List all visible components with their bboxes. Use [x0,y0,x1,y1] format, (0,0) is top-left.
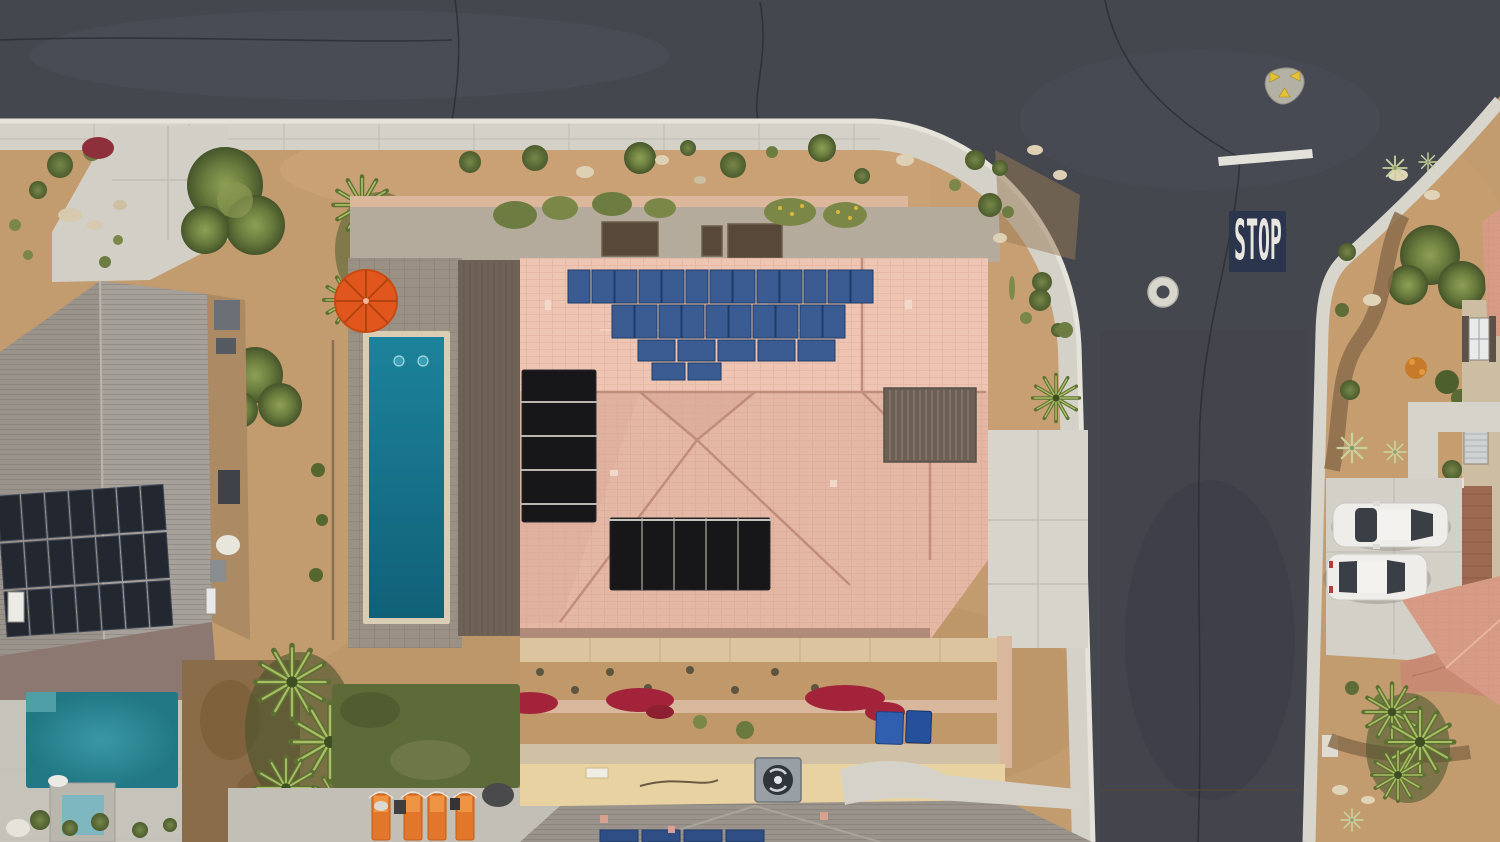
covered-patio-roof [458,260,520,636]
cactus [1009,276,1015,300]
stop-marking: STOP [1229,208,1286,272]
lap-pool [363,331,450,624]
skylight [586,768,608,778]
taillight [1329,586,1333,593]
pool-jet [418,356,428,366]
yellow-flower-bush [823,202,867,228]
lounger [369,792,393,840]
taillight [1329,561,1333,568]
side-table [450,798,460,810]
white-dome [6,819,30,837]
stop-text: STOP [1234,208,1282,272]
pool-steps [26,692,56,712]
main-property [228,134,1092,842]
skylight [8,592,24,622]
car-suv [1323,554,1431,604]
garden-bed [728,224,782,258]
lounger [425,792,449,840]
aerial-photo-canvas: STOP [0,0,1500,842]
car-sedan [1331,501,1451,551]
manhole-cover [1148,277,1178,307]
window-shuttered [1462,316,1496,362]
windshield [1387,560,1405,594]
ac-unit [755,758,801,802]
bougainvillea [82,137,114,159]
window-louver [1464,428,1488,464]
side-table [394,800,406,814]
lounger [401,792,425,840]
aerial-photo: STOP [0,0,1500,842]
pergola [884,388,976,462]
back-walkway [520,638,1000,662]
solar-row-2 [612,305,845,338]
orange-flower-bush [1405,357,1427,379]
patio-umbrella [335,270,397,332]
yellow-flower-bush [764,198,816,226]
windshield [1355,508,1377,542]
left-solar-array [0,485,173,637]
rear-window [1411,509,1433,541]
backyard-patio [350,207,1000,262]
garden-bed [702,226,722,256]
pool-jet [394,356,404,366]
spa [48,775,115,842]
solar-row-3 [638,340,835,361]
rear-window [1339,561,1357,593]
garden-bed [602,222,658,256]
left-pool [26,692,178,788]
boulder [482,783,514,807]
back-wall [500,700,1010,713]
